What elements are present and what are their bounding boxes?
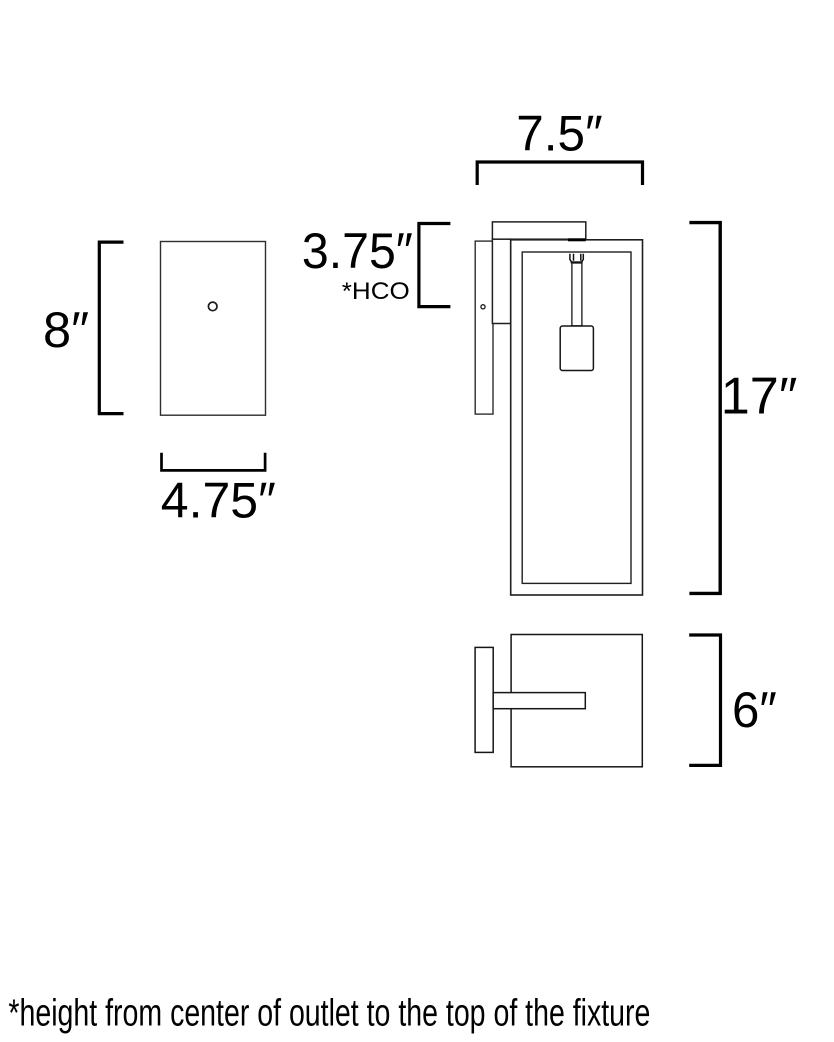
- svg-text:*HCO: *HCO: [342, 278, 410, 305]
- svg-text:17″: 17″: [721, 368, 798, 426]
- svg-text:*height from center of outlet: *height from center of outlet to the top…: [8, 993, 650, 1035]
- svg-text:4.75″: 4.75″: [161, 473, 276, 529]
- svg-text:3.75″: 3.75″: [302, 223, 413, 279]
- svg-text:8″: 8″: [43, 302, 89, 358]
- svg-text:6″: 6″: [732, 682, 777, 738]
- svg-text:7.5″: 7.5″: [516, 105, 602, 161]
